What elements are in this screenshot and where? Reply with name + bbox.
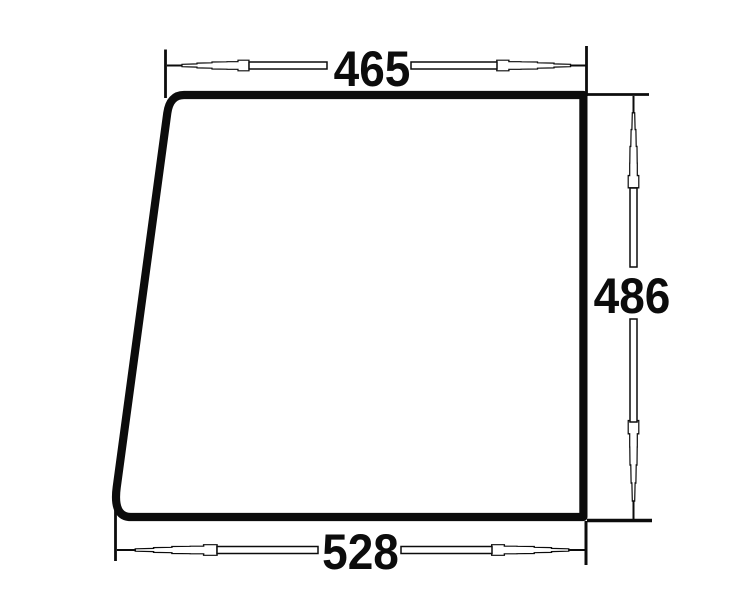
svg-text:528: 528 <box>322 525 399 580</box>
svg-text:486: 486 <box>594 269 671 324</box>
svg-text:465: 465 <box>334 42 411 97</box>
